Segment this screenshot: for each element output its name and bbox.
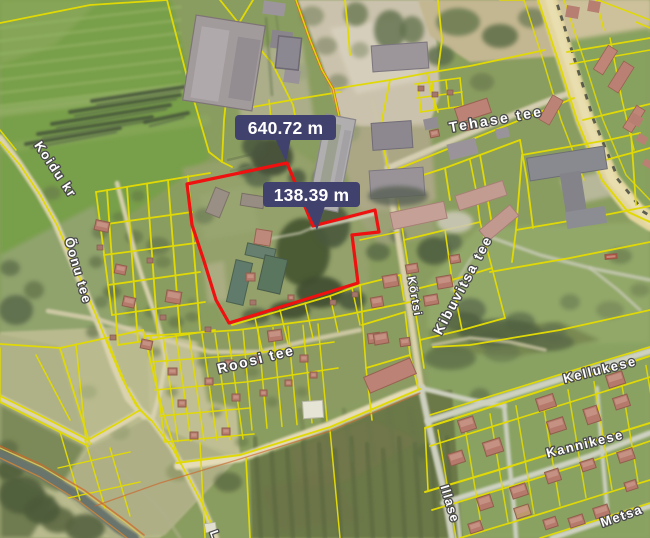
svg-text:138.39 m: 138.39 m <box>274 185 350 205</box>
svg-text:640.72 m: 640.72 m <box>248 118 324 138</box>
